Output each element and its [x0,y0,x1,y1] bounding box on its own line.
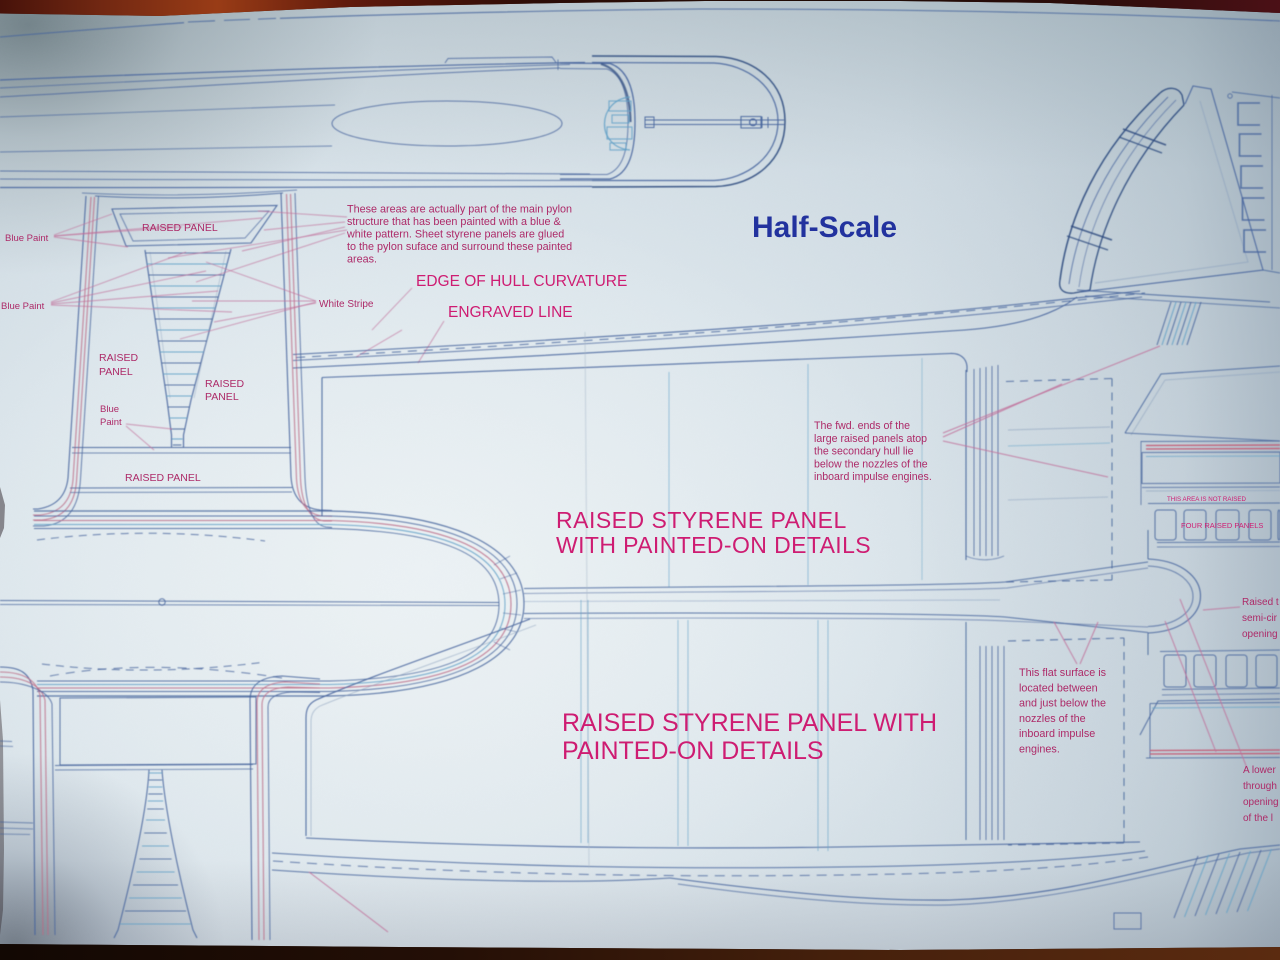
svg-text:A lower: A lower [1243,765,1276,776]
svg-text:RAISED STYRENE PANEL WITH: RAISED STYRENE PANEL WITH [562,709,937,737]
svg-text:Blue Paint: Blue Paint [1,301,45,312]
svg-text:RAISED: RAISED [99,352,139,364]
svg-text:opening: opening [1242,629,1278,640]
svg-text:large raised panels atop: large raised panels atop [814,433,927,445]
svg-text:PAINTED-ON DETAILS: PAINTED-ON DETAILS [562,737,824,765]
svg-text:below the nozzles of the: below the nozzles of the [814,458,928,470]
svg-text:inboard impulse: inboard impulse [1019,728,1095,740]
svg-text:WITH PAINTED-ON DETAILS: WITH PAINTED-ON DETAILS [556,532,871,558]
svg-text:FOUR RAISED PANELS: FOUR RAISED PANELS [1181,521,1263,530]
svg-text:EDGE OF HULL CURVATURE: EDGE OF HULL CURVATURE [416,273,627,290]
svg-text:the secondary hull lie: the secondary hull lie [814,446,914,458]
svg-text:engines.: engines. [1019,744,1060,756]
svg-text:RAISED PANEL: RAISED PANEL [142,222,218,234]
svg-text:nozzles of the: nozzles of the [1019,713,1086,725]
svg-text:areas.: areas. [347,254,377,266]
svg-text:semi-cir: semi-cir [1242,613,1278,624]
svg-text:and just below the: and just below the [1019,698,1106,710]
svg-text:RAISED PANEL: RAISED PANEL [125,472,201,484]
svg-text:through: through [1243,781,1277,792]
svg-text:structure that has been painte: structure that has been painted with a b… [347,216,561,228]
svg-text:This flat surface is: This flat surface is [1019,667,1107,679]
svg-text:RAISED STYRENE PANEL: RAISED STYRENE PANEL [556,507,847,533]
svg-text:These areas are actually part: These areas are actually part of the mai… [347,204,572,216]
svg-text:Blue: Blue [100,404,119,415]
svg-text:inboard impulse engines.: inboard impulse engines. [814,471,932,483]
svg-text:located between: located between [1019,682,1098,694]
svg-text:PANEL: PANEL [99,366,133,378]
svg-text:RAISED: RAISED [205,378,245,390]
svg-text:PANEL: PANEL [205,391,239,403]
svg-text:Raised t: Raised t [1242,597,1279,608]
svg-text:ENGRAVED LINE: ENGRAVED LINE [448,304,573,321]
svg-text:Paint: Paint [100,417,122,428]
svg-text:The fwd. ends of the: The fwd. ends of the [814,420,910,432]
svg-text:white pattern. Sheet styrene: white pattern. Sheet styrene panels are … [346,229,564,241]
svg-text:Half-Scale: Half-Scale [752,211,897,244]
svg-text:White Stripe: White Stripe [319,299,374,310]
svg-text:opening: opening [1243,797,1279,808]
svg-text:Blue Paint: Blue Paint [5,233,49,244]
svg-text:of the l: of the l [1243,813,1273,824]
svg-text:THIS AREA IS NOT RAISED: THIS AREA IS NOT RAISED [1167,496,1246,503]
svg-text:to the pylon suface and surrou: to the pylon suface and surround these p… [347,241,572,253]
